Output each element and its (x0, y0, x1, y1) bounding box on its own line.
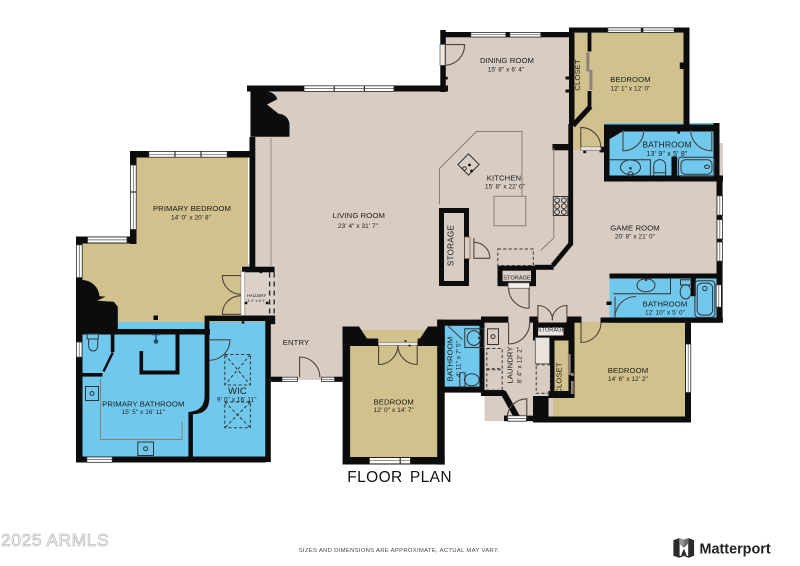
svg-text:GAME ROOM: GAME ROOM (610, 224, 660, 233)
svg-text:14' 0" x 20' 8": 14' 0" x 20' 8" (171, 215, 211, 222)
svg-text:SIZES AND DIMENSIONS ARE APPRO: SIZES AND DIMENSIONS ARE APPROXIMATE, AC… (299, 548, 500, 554)
svg-text:12' 10" x 5' 0": 12' 10" x 5' 0" (645, 310, 685, 317)
svg-text:4' 11" x 7' 5": 4' 11" x 7' 5" (456, 341, 463, 377)
svg-text:HALLWAY: HALLWAY (247, 293, 266, 298)
svg-text:12' 0" x 14' 7": 12' 0" x 14' 7" (374, 407, 414, 414)
svg-text:DINING ROOM: DINING ROOM (480, 56, 534, 65)
svg-text:BEDROOM: BEDROOM (373, 398, 413, 407)
svg-text:BATHROOM: BATHROOM (446, 337, 455, 382)
svg-text:BEDROOM: BEDROOM (610, 75, 650, 84)
svg-text:23' 4" x 31' 7": 23' 4" x 31' 7" (338, 223, 378, 230)
svg-text:BEDROOM: BEDROOM (608, 366, 648, 375)
svg-text:20' 8" x 21' 0": 20' 8" x 21' 0" (615, 234, 655, 241)
svg-text:9' 0" x 16' 11": 9' 0" x 16' 11" (217, 396, 257, 403)
svg-text:KITCHEN: KITCHEN (487, 174, 521, 183)
svg-text:13' 9" x 5' 8": 13' 9" x 5' 8" (646, 151, 688, 158)
svg-text:STORAGE: STORAGE (503, 276, 531, 282)
svg-text:PRIMARY BEDROOM: PRIMARY BEDROOM (153, 204, 231, 213)
svg-text:2025 ARMLS: 2025 ARMLS (1, 530, 109, 550)
svg-text:BATHROOM: BATHROOM (643, 300, 688, 309)
svg-text:ENTRY: ENTRY (283, 338, 309, 347)
svg-text:CLOSET: CLOSET (573, 59, 582, 91)
svg-text:3' 2" x 6' 1": 3' 2" x 6' 1" (247, 299, 266, 303)
svg-text:Matterport: Matterport (700, 541, 771, 557)
svg-text:LIVING ROOM: LIVING ROOM (333, 211, 385, 220)
svg-text:15' 8" x 22' 0": 15' 8" x 22' 0" (485, 184, 525, 191)
svg-text:14' 6" x 12' 2": 14' 6" x 12' 2" (608, 376, 648, 383)
svg-text:15' 5" x 16' 11": 15' 5" x 16' 11" (122, 409, 165, 416)
svg-text:BATHROOM: BATHROOM (642, 140, 691, 150)
svg-text:12' 1" x 12' 0": 12' 1" x 12' 0" (610, 86, 650, 93)
svg-text:STORAGE: STORAGE (447, 225, 456, 267)
svg-text:FLOOR PLAN: FLOOR PLAN (347, 469, 452, 486)
svg-text:CLOSET: CLOSET (555, 362, 564, 394)
svg-text:STORAGE: STORAGE (538, 328, 566, 334)
svg-text:PRIMARY BATHROOM: PRIMARY BATHROOM (102, 400, 184, 409)
svg-text:15' 8" x 6' 4": 15' 8" x 6' 4" (488, 67, 524, 74)
svg-text:8' 4" x 12' 2": 8' 4" x 12' 2" (517, 347, 524, 383)
svg-text:WIC: WIC (228, 386, 247, 396)
svg-text:LAUNDRY: LAUNDRY (506, 346, 515, 383)
